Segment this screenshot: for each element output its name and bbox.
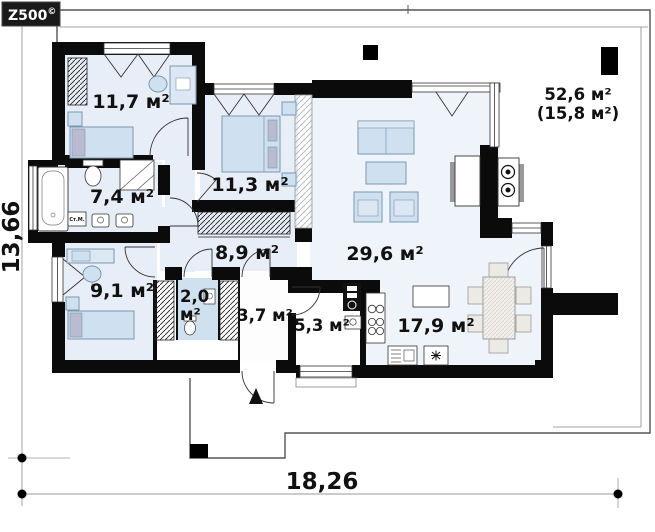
wardrobe-icon [68,58,87,105]
window-bathroom [29,166,37,230]
bed-single-icon [68,311,134,339]
room-area-bedroom-middle: 11,3 м² [211,174,288,196]
column-porch-icon [190,444,208,458]
closet-icon [155,281,174,340]
nightstand-icon [66,297,79,310]
bed-double-icon [222,116,280,172]
closet-icon [220,281,239,340]
chair-icon [149,76,167,92]
partition-hatched [295,95,312,228]
room-area-wc-unit: м² [180,305,201,324]
armchair-icon [354,192,382,222]
dimension-height-label: 13,66 [0,201,25,274]
dimension-width-label: 18,26 [286,469,359,495]
floor-plan-svg: Ст.М. [0,0,655,532]
washing-machine-label: Ст.М. [69,217,84,223]
floor-plan-canvas: Ст.М. [0,0,655,532]
window-dining-terrace-door [542,246,551,288]
furniture-hallway [198,212,290,237]
oven-stack-icon [343,283,361,311]
kitchen-island-icon [413,286,449,307]
washing-machine-icon: Ст.М. [68,212,86,226]
room-area-bedroom-top-left: 11,7 м² [92,91,169,113]
column-top-icon [363,45,378,60]
bathtub-icon [38,167,68,231]
room-area-entry: 3,7 м² [237,306,293,325]
freezer-icon [424,346,448,365]
room-area-kitchen: 17,9 м² [397,315,474,337]
armchair-icon [390,192,418,222]
entrance-arrow-icon [249,388,263,404]
window-utility-south [296,366,356,387]
terrace-area-net: (15,8 м²) [537,104,619,123]
column-right-icon [601,47,618,75]
sofa-icon [358,121,414,154]
desk-icon [67,249,114,263]
nightstand-icon [68,112,82,126]
room-area-bedroom-bottom-left: 9,1 м² [90,280,154,302]
window-living-right-glazing [490,83,499,147]
room-area-hallway: 8,9 м² [215,242,279,264]
coffee-table-icon [366,162,406,184]
fridge-icon [388,346,417,365]
room-area-living: 29,6 м² [346,243,423,265]
kitchen-counter-icon [366,293,385,343]
room-area-utility: 5,3 м² [294,316,350,335]
desk-icon [170,66,196,104]
brand-badge: Z500© [2,2,60,26]
wardrobe-icon [198,212,290,234]
nightstand-icon [282,102,296,115]
room-area-wc-value: 2,0 [180,287,209,306]
bed-single-icon [70,127,133,158]
room-area-bathroom: 7,4 м² [90,186,154,208]
window-kitchen-north [512,223,541,233]
terrace-area: 52,6 м² [544,85,611,104]
